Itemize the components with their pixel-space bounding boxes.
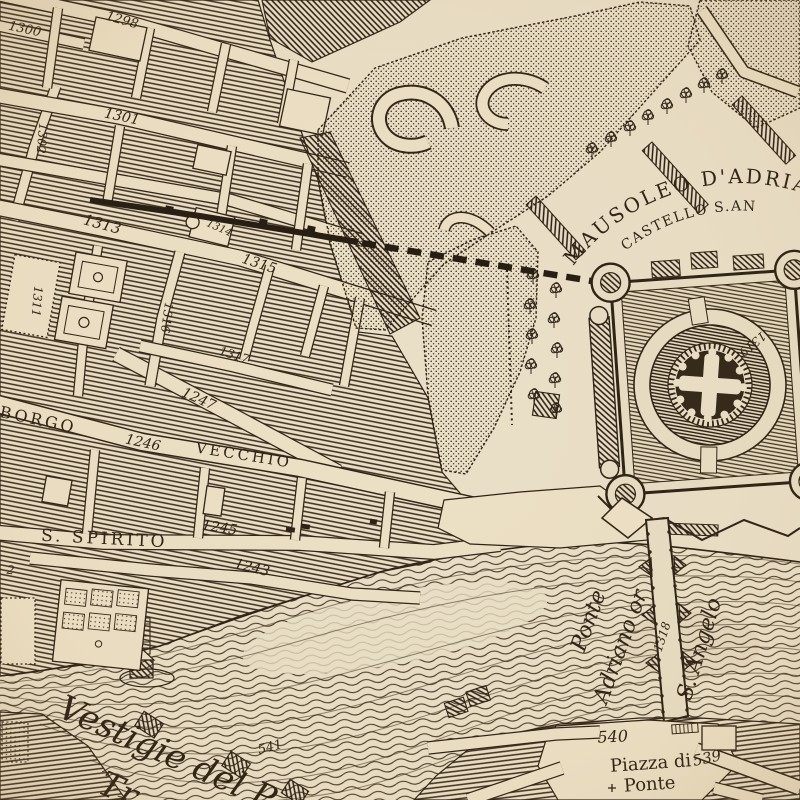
street-number-1302: 1302 (34, 123, 51, 155)
label-piazza-ponte: Ponte (623, 772, 676, 797)
street-number-1311: 1311 (29, 286, 46, 318)
hospital-gardens (52, 580, 148, 671)
dotted-courtyard (1, 598, 35, 664)
map-sheet: 1298 1300 1301 1302 1313 1314 1315 1311 … (0, 0, 800, 800)
dock-steps (672, 723, 699, 734)
street-number-540: 540 (597, 726, 628, 747)
engraved-map: 1298 1300 1301 1302 1313 1314 1315 1311 … (0, 0, 800, 800)
